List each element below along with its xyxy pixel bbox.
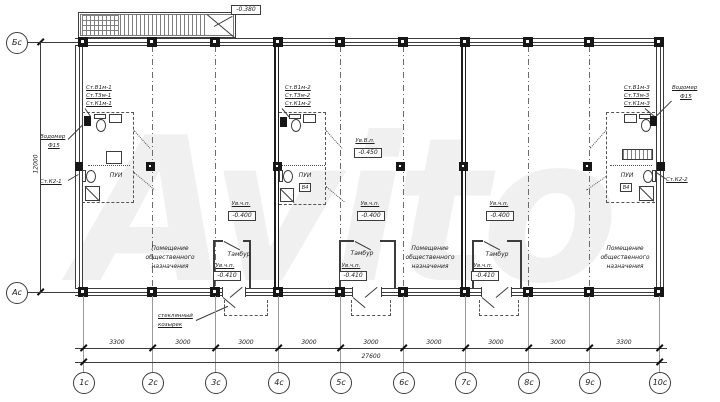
water-meter-label: Ф15 — [48, 142, 60, 150]
water-meter-label: Водомер — [672, 84, 697, 92]
dim-label: 3000 — [163, 339, 203, 347]
dotted-leader — [590, 130, 607, 149]
tambour1-wall — [243, 240, 251, 242]
axis-extension — [465, 296, 466, 372]
column — [398, 37, 408, 47]
dim-label-height: 12000 — [33, 144, 41, 185]
tambour2-wall — [339, 240, 354, 242]
toilet-bowl — [643, 170, 653, 183]
door-leaf — [355, 241, 371, 250]
stack-label: Ст.К2-1 — [40, 178, 62, 186]
dotted-leader — [326, 186, 345, 202]
water-meter-label: Водомер — [40, 133, 65, 141]
dim-label: 3000 — [226, 339, 266, 347]
tambour1-wall — [249, 240, 251, 288]
tambour3-wall — [507, 240, 522, 242]
elevation-mark: -0.400 — [357, 211, 385, 221]
elevation-mark: -0.400 — [486, 211, 514, 221]
vent-grille-mark: В4 — [299, 183, 311, 192]
glass-canopy-outline — [351, 300, 391, 316]
water-meter — [650, 116, 657, 126]
tambour1-wall — [213, 240, 223, 242]
sink — [624, 114, 637, 123]
column — [273, 37, 283, 47]
tambour3-wall — [520, 240, 522, 288]
stack-label: Ст.В1м-3 — [624, 84, 650, 92]
axis-bubble-As: Ас — [6, 282, 28, 304]
stack-label: Ст.В1м-2 — [285, 84, 311, 92]
elevation-label: Ув.ч.п. — [337, 262, 365, 270]
ramp-stair-grid — [82, 15, 119, 35]
floor-plan-drawing: Avito -0.380 — [0, 0, 720, 402]
axis-extension — [403, 296, 404, 372]
dim-label: 3000 — [476, 339, 516, 347]
sink — [109, 114, 122, 123]
dim-total-label: 27600 — [351, 353, 391, 361]
toilet-bowl — [86, 170, 96, 183]
axis-bubble: 5с — [330, 372, 352, 394]
axis-line-8s — [528, 46, 529, 288]
column — [210, 37, 220, 47]
toilet-bowl — [96, 119, 106, 132]
stack-label: Ст.К1м-2 — [285, 100, 311, 108]
canopy-label: козырек — [158, 321, 182, 329]
dim-label: 3000 — [351, 339, 391, 347]
tambour2-wall — [394, 240, 396, 288]
axis-line-3s — [215, 46, 216, 288]
sink — [303, 114, 316, 123]
column — [523, 37, 533, 47]
dotted-line — [610, 165, 652, 166]
column — [147, 37, 157, 47]
stack-label: Ст.Т3м-3 — [624, 92, 649, 100]
room-label-tambour: Тамбур — [224, 251, 254, 259]
glass-canopy-outline — [479, 300, 519, 316]
stack-label: Ст.Т3м-1 — [86, 92, 111, 100]
axis-bubble: 7с — [455, 372, 477, 394]
column — [78, 37, 88, 47]
axis-bubble: 8с — [518, 372, 540, 394]
elevation-label: Ув.ч.п. — [469, 262, 497, 270]
counter — [106, 151, 122, 164]
axis-extension — [589, 296, 590, 372]
dotted-leader — [134, 130, 151, 149]
room-label-public: Помещение общественного назначения — [138, 244, 202, 271]
elevation-mark: -0.410 — [471, 271, 499, 281]
column — [460, 37, 470, 47]
room-label-public: Помещение общественного назначения — [593, 244, 657, 271]
elevation-mark: -0.450 — [354, 148, 382, 158]
elevation-label: Ув.ч.п. — [356, 200, 384, 208]
elevation-mark: -0.410 — [339, 271, 367, 281]
dimension-line — [75, 362, 667, 363]
axis-bubble: 2с — [142, 372, 164, 394]
stack-label: Ст.Т3м-2 — [285, 92, 310, 100]
water-meter — [84, 116, 91, 126]
door-leaf — [484, 241, 500, 250]
axis-extension — [278, 296, 279, 372]
wall-pilaster — [657, 162, 665, 171]
column — [396, 162, 405, 171]
column — [146, 162, 155, 171]
axis-bubble: 9с — [579, 372, 601, 394]
axis-bubble: 6с — [393, 372, 415, 394]
room-label-tambour: Тамбур — [482, 251, 512, 259]
room-label-public: Помещение общественного назначения — [398, 244, 462, 271]
axis-bubble: 4с — [268, 372, 290, 394]
axis-bubble-Bs: Бс — [6, 32, 28, 54]
column — [583, 162, 592, 171]
door-leaf — [224, 241, 240, 250]
axis-line — [28, 292, 75, 293]
counter — [622, 149, 653, 160]
dim-label: 3300 — [97, 339, 137, 347]
ramp-elevation-mark: -0.380 — [231, 5, 261, 15]
room-label-pui: ПУИ — [106, 172, 126, 180]
toilet-bowl — [291, 119, 301, 132]
axis-bubble: 1с — [73, 372, 95, 394]
elevation-label: Ув.ч.п. — [227, 200, 255, 208]
stack-label: Ст.К2-2 — [666, 176, 688, 184]
column — [335, 37, 345, 47]
stack-label: Ст.В1м-1 — [86, 84, 112, 92]
canopy-label: стеклянный — [158, 312, 193, 320]
dimension-line — [75, 348, 667, 349]
elevation-mark: -0.410 — [213, 271, 241, 281]
vent-grille-mark: В4 — [620, 183, 632, 192]
room-label-pui: ПУИ — [617, 172, 637, 180]
dotted-line — [88, 165, 130, 166]
elevation-mark: -0.400 — [228, 211, 256, 221]
toilet-bowl — [283, 170, 293, 183]
water-meter-label: Ф15 — [680, 93, 692, 101]
axis-extension — [340, 296, 341, 372]
axis-extension — [215, 296, 216, 372]
axis-extension — [152, 296, 153, 372]
glass-canopy-outline — [224, 300, 268, 316]
stack-label: Ст.К1м-3 — [624, 100, 650, 108]
wall-top — [75, 38, 664, 46]
tambour2-wall — [380, 240, 396, 242]
elevation-label: Ув.ч.п. — [485, 200, 513, 208]
axis-bubble: 10с — [649, 372, 671, 394]
room-label-tambour: Тамбур — [347, 250, 377, 258]
ramp-hatch — [120, 15, 206, 35]
axis-extension — [528, 296, 529, 372]
stack-label: Ст.К1м-1 — [86, 100, 112, 108]
axis-line — [28, 42, 75, 43]
column — [584, 37, 594, 47]
dotted-line — [282, 165, 325, 166]
elevation-label: Ув.ч.п. — [211, 262, 239, 270]
axis-bubble: 3с — [205, 372, 227, 394]
tambour3-wall — [472, 240, 483, 242]
elevation-label: Ув.В.п. — [348, 137, 382, 145]
dim-label: 3000 — [414, 339, 454, 347]
water-meter — [280, 117, 287, 127]
column — [459, 162, 468, 171]
column — [654, 37, 664, 47]
dim-label: 3000 — [538, 339, 578, 347]
dim-label: 3000 — [289, 339, 329, 347]
room-label-pui: ПУИ — [295, 172, 315, 180]
dim-label: 3300 — [604, 339, 644, 347]
